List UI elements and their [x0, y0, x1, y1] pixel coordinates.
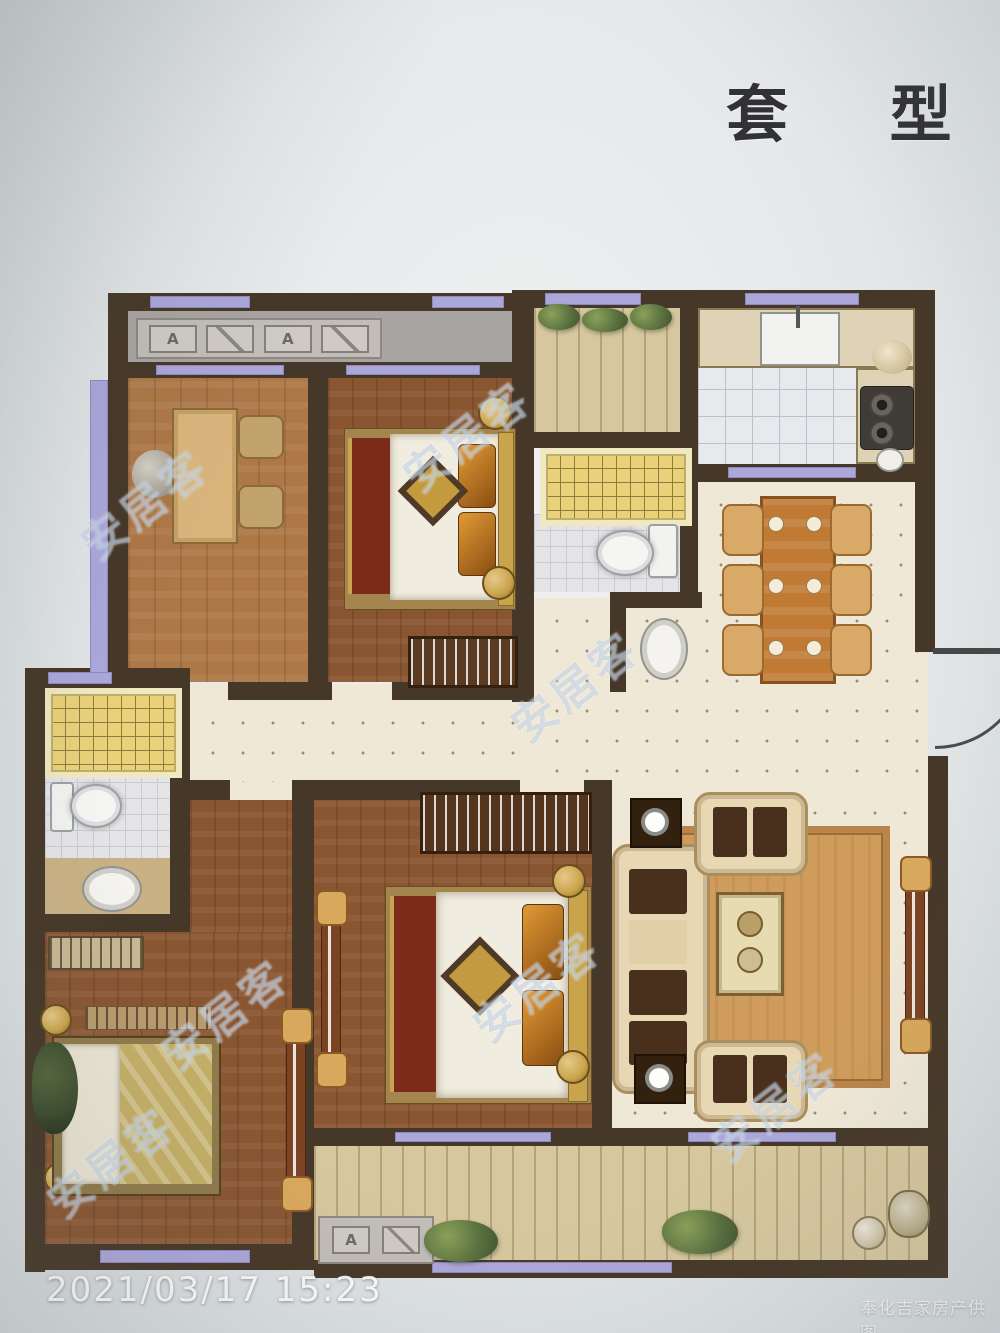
ac-unit-label: A [332, 1226, 370, 1254]
end-table [634, 1054, 686, 1104]
agency-credit-watermark: 奉化吉家房产供图 [860, 1294, 1000, 1333]
window-study-north [156, 365, 284, 375]
window-bath2 [48, 672, 112, 684]
small-sink [876, 448, 904, 472]
ac-platform-bottom: A [318, 1216, 434, 1264]
plant [538, 304, 580, 330]
corridor-floor [190, 700, 534, 790]
wall-master-living [592, 800, 612, 1130]
place-setting [806, 516, 822, 532]
place-setting [806, 640, 822, 656]
ac-platform-top: A A [136, 318, 382, 359]
loveseat [694, 792, 808, 876]
wall-east-lower [928, 756, 948, 1130]
bedroom2-door-opening [332, 684, 392, 700]
sink-tap [796, 306, 800, 328]
place-setting [768, 640, 784, 656]
shower-tray [45, 688, 182, 778]
master-nightstand [552, 864, 586, 898]
master-sliding-door [316, 890, 346, 1088]
wash-basin [640, 618, 688, 680]
burner-icon [870, 393, 894, 417]
photo-timestamp: 2021/03/17 15:23 [46, 1270, 383, 1310]
wall-laundry-bath1 [534, 432, 680, 448]
window-bedroom2-north [346, 365, 480, 375]
place-setting [768, 516, 784, 532]
kitchen-bowl [872, 340, 912, 374]
wall-corridor-2 [228, 682, 332, 700]
crossed-box-icon [321, 325, 369, 353]
ac-unit-label: A [264, 325, 312, 353]
bedroom3-hanger-rack [85, 1006, 212, 1030]
bed2-pillow [458, 444, 496, 508]
page-title: 套 型 [726, 64, 992, 154]
wall-bath2-bottom [45, 914, 190, 932]
dining-chair [722, 624, 764, 676]
plant [630, 304, 672, 330]
kitchen-sink [760, 312, 840, 366]
toilet-bowl [70, 784, 122, 828]
desk [172, 408, 238, 544]
master-nightstand [556, 1050, 590, 1084]
window-ac-balcony-2 [432, 296, 504, 308]
wall-bedroom3-top [186, 780, 230, 800]
dining-chair [722, 564, 764, 616]
bed3-duvet [120, 1044, 212, 1184]
bedroom2-wardrobe [408, 636, 518, 688]
burner-icon [870, 421, 894, 445]
window-kitchen-dining [728, 467, 856, 478]
bedroom3-sliding-door [281, 1008, 311, 1212]
window-master-south [395, 1132, 551, 1142]
plant [582, 308, 628, 332]
balcony-table [852, 1216, 886, 1250]
window-ac-balcony-1 [150, 296, 250, 308]
entry-door-leaf [933, 648, 1000, 654]
wall-west-upper [108, 293, 128, 699]
floorplan-photo: A A A [0, 0, 1000, 1333]
entry-door-swing-arc [935, 656, 1000, 749]
bed2-nightstand [482, 566, 516, 600]
balcony-plant [662, 1210, 738, 1254]
window-living-south [688, 1132, 836, 1142]
master-pillow [522, 990, 564, 1066]
bed2-nightstand [478, 396, 512, 430]
bedside-stool [40, 1004, 72, 1036]
coffee-table [716, 892, 784, 996]
place-setting [768, 578, 784, 594]
dining-chair [830, 624, 872, 676]
wall-study-bedroom2 [308, 366, 328, 698]
loveseat [694, 1040, 808, 1122]
ac-unit-label: A [149, 325, 197, 353]
stove [860, 386, 914, 450]
master-pillow [522, 904, 564, 980]
window-balcony-south [432, 1262, 672, 1273]
dining-chair [830, 564, 872, 616]
end-table [630, 798, 682, 848]
dining-chair [722, 504, 764, 556]
master-wardrobe [420, 792, 592, 854]
dining-chair [830, 504, 872, 556]
crossed-box-icon [382, 1226, 420, 1254]
lamp-icon [649, 1068, 669, 1088]
shower-tray [540, 448, 692, 526]
balcony-plant [424, 1220, 498, 1262]
place-setting [806, 578, 822, 594]
lamp-icon [645, 812, 665, 832]
crossed-box-icon [206, 325, 254, 353]
bedroom3-floor-upper [190, 800, 292, 932]
wicker-chair [888, 1190, 930, 1238]
plant [32, 1042, 78, 1134]
window-bedroom3-south [100, 1250, 250, 1263]
bedroom3-wardrobe [48, 936, 144, 970]
living-sliding-window [900, 856, 930, 1054]
toilet-bowl [596, 530, 654, 576]
window-kitchen-north [745, 293, 859, 305]
wall-balcony-east [928, 1128, 948, 1278]
bed2-pillow [458, 512, 496, 576]
guest-chair [238, 485, 284, 529]
window-study-west [90, 380, 108, 680]
wall-bath1-basin-left [610, 592, 626, 692]
guest-chair [238, 415, 284, 459]
wall-west-lower [25, 668, 45, 1272]
wall-bath1-basin-top [614, 592, 702, 608]
wash-basin [82, 866, 142, 912]
bedroom3-door-opening [230, 782, 292, 800]
